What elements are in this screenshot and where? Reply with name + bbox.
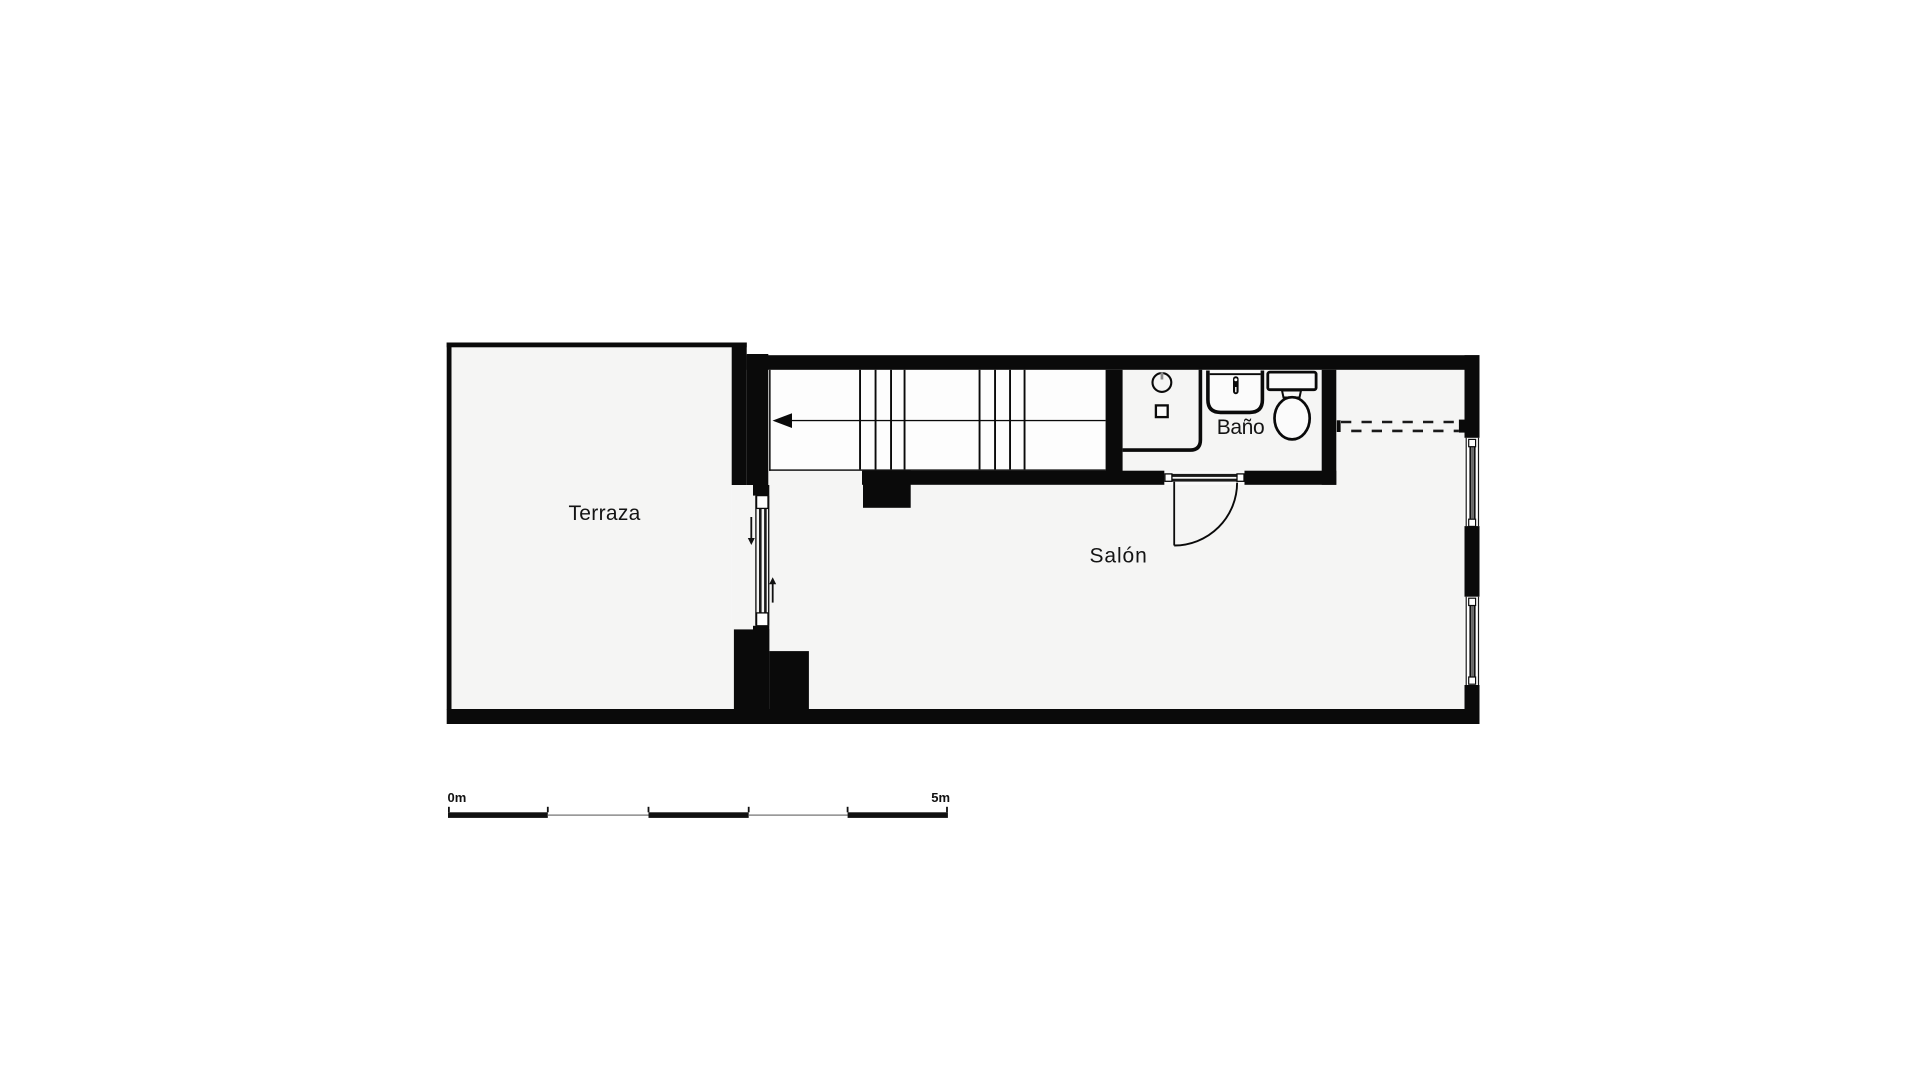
svg-text:Terraza: Terraza — [569, 502, 641, 525]
svg-text:5m: 5m — [931, 790, 950, 805]
svg-text:0m: 0m — [448, 790, 467, 805]
svg-text:Salón: Salón — [1090, 545, 1148, 568]
svg-text:Baño: Baño — [1217, 416, 1264, 439]
